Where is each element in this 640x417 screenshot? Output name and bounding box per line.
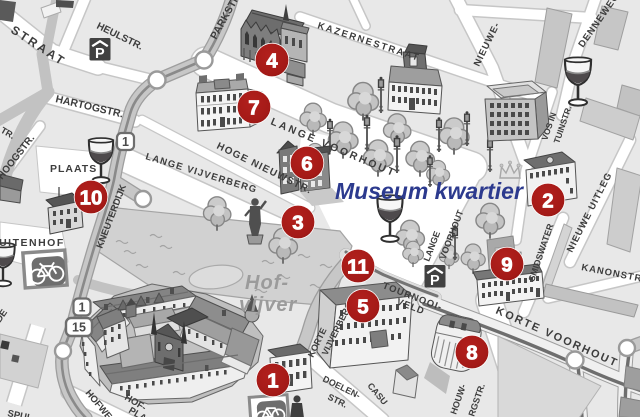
svg-text:1: 1 (79, 301, 86, 315)
svg-text:7: 7 (248, 96, 259, 119)
svg-text:Hof-: Hof- (245, 272, 289, 294)
svg-text:BUITENHOF: BUITENHOF (0, 237, 65, 249)
svg-text:PLAATS: PLAATS (50, 163, 97, 175)
svg-text:2: 2 (542, 189, 553, 212)
svg-text:9: 9 (501, 253, 512, 276)
svg-text:5: 5 (357, 295, 368, 318)
svg-text:15: 15 (72, 321, 86, 335)
svg-text:4: 4 (266, 49, 278, 72)
svg-text:10: 10 (80, 186, 103, 209)
svg-text:11: 11 (347, 255, 369, 278)
svg-text:1: 1 (267, 369, 278, 392)
svg-text:6: 6 (301, 152, 312, 175)
svg-text:vijver: vijver (239, 294, 297, 316)
svg-text:1: 1 (122, 135, 129, 149)
svg-text:8: 8 (466, 341, 477, 364)
svg-text:Museum kwartier: Museum kwartier (335, 178, 524, 204)
svg-text:3: 3 (292, 211, 303, 234)
